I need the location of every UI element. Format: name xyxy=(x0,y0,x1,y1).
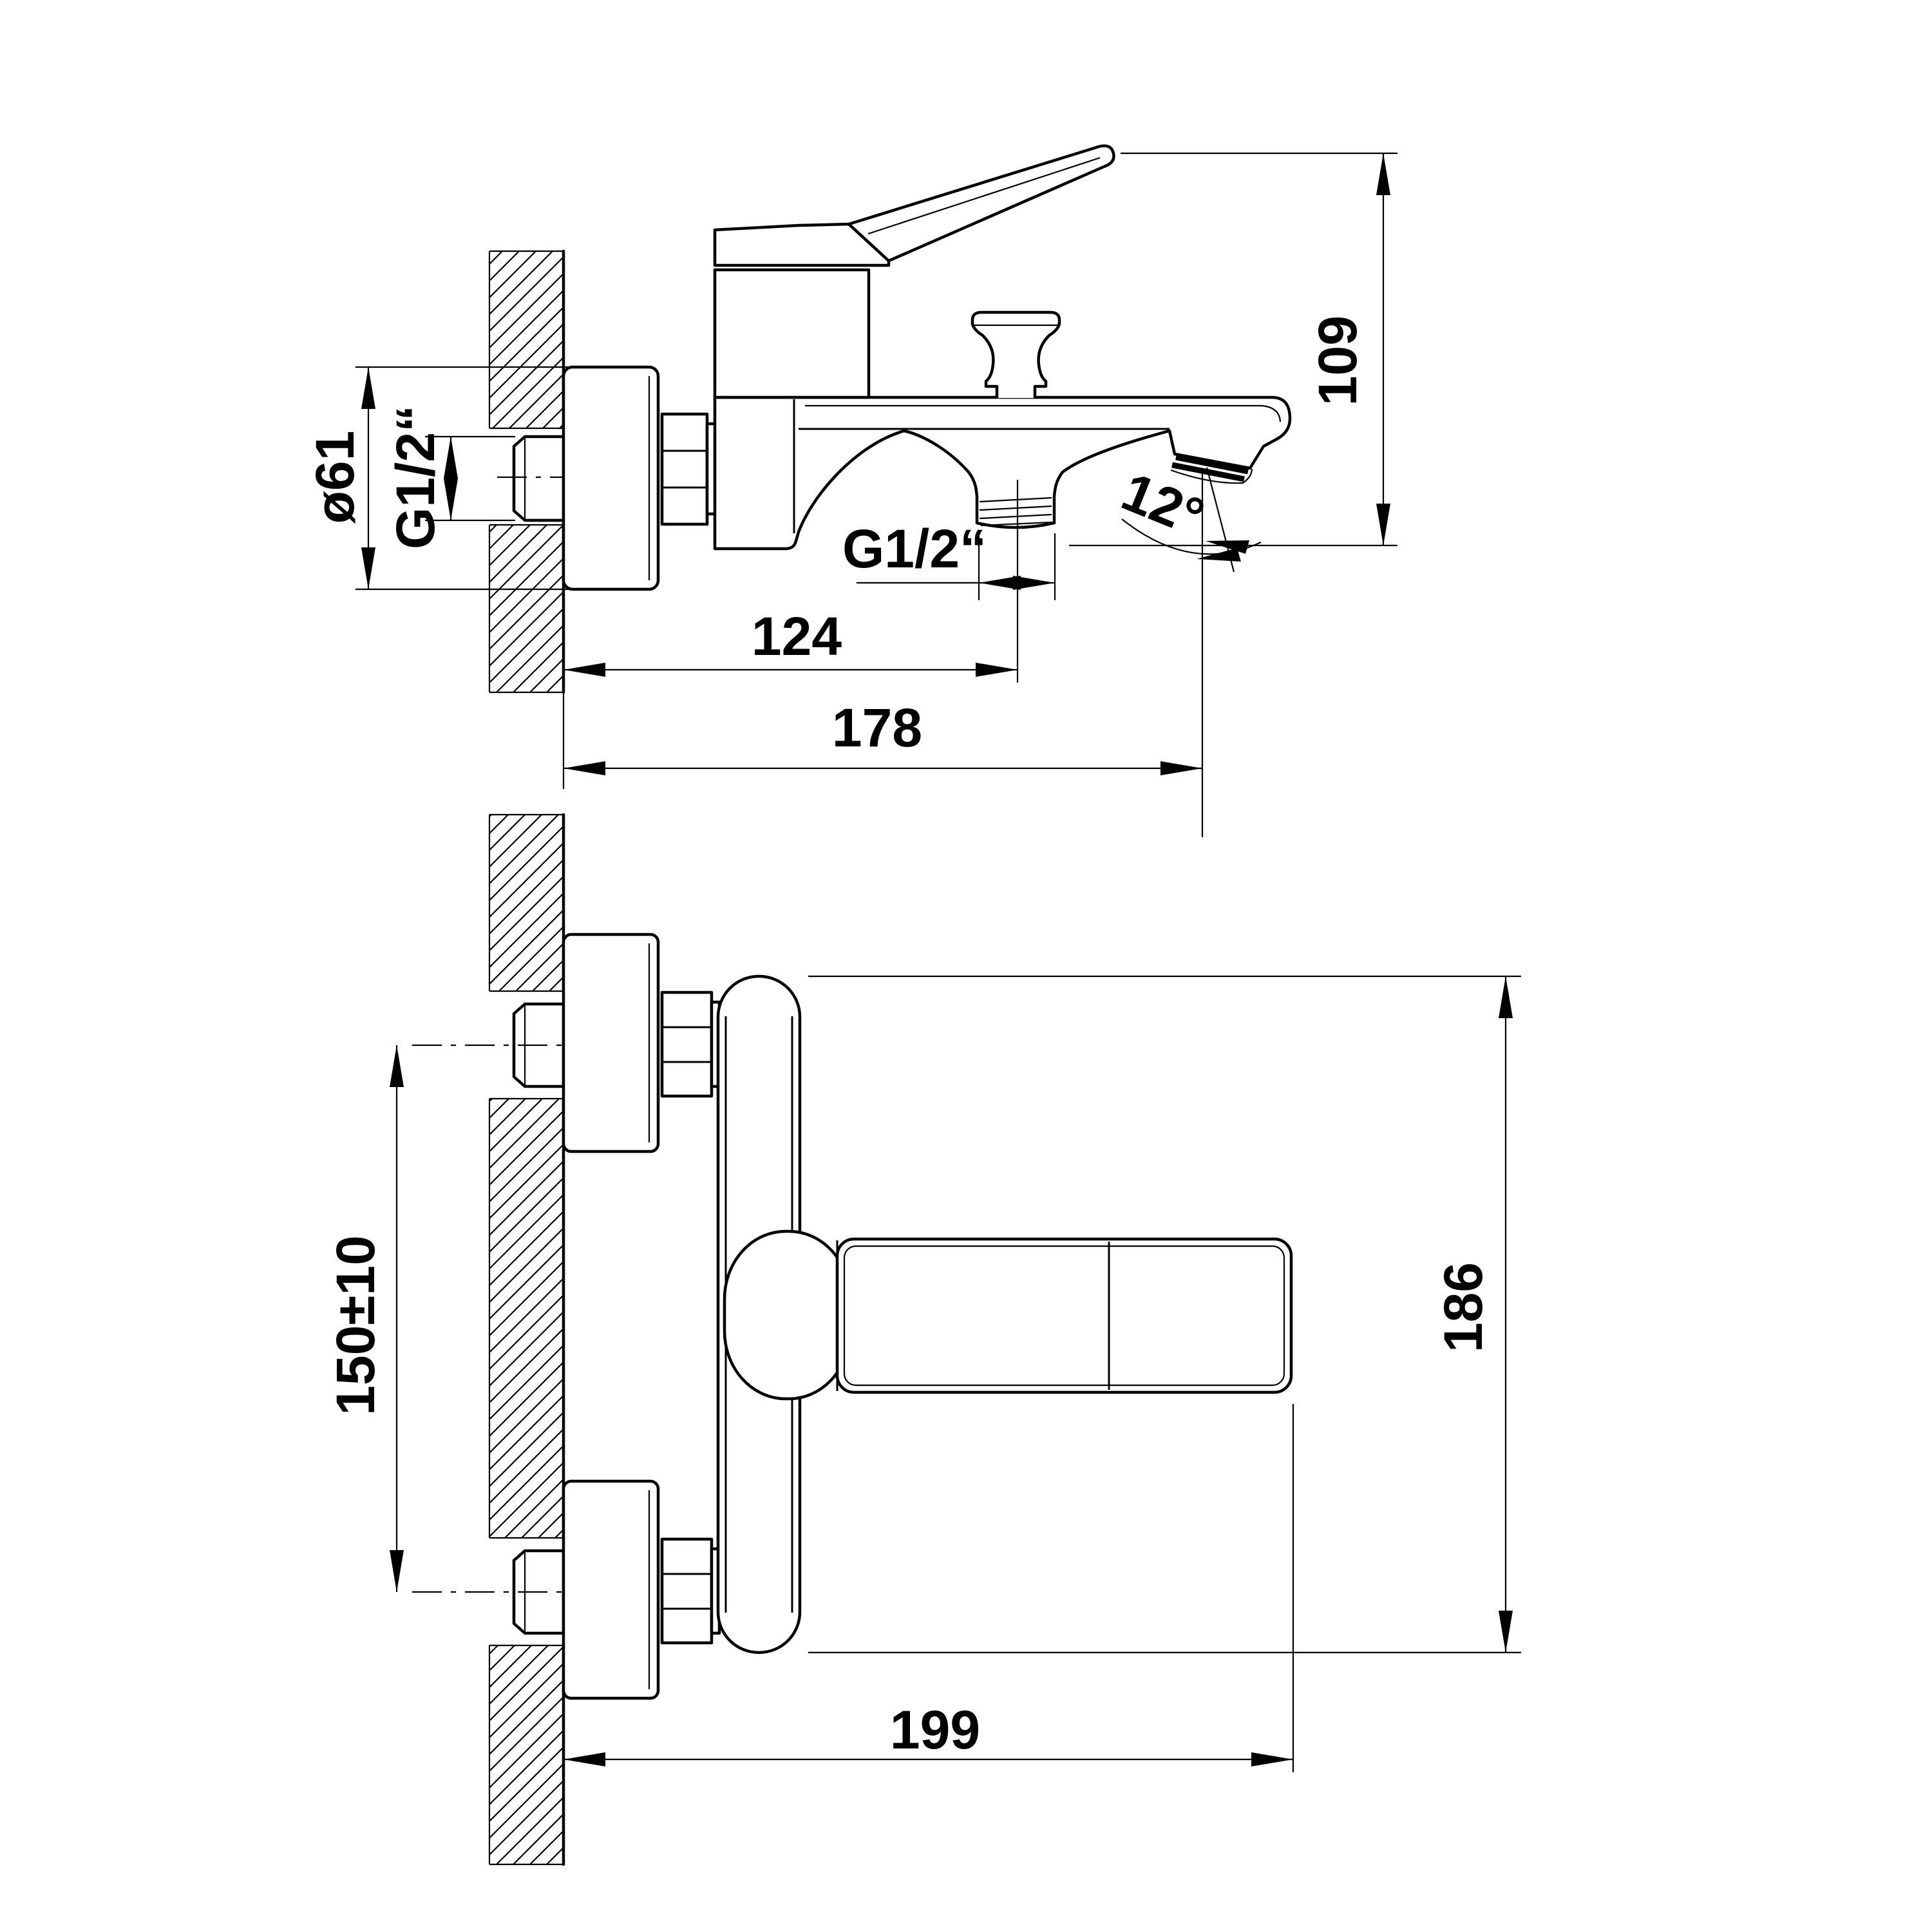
dimension-178: 178 xyxy=(563,697,1202,775)
cartridge-body-side-view xyxy=(715,270,869,397)
body-cap-plan-view xyxy=(724,1231,850,1399)
handle-spout-plan-view xyxy=(837,1239,1291,1392)
dimension-150: 150±10 xyxy=(325,1045,404,1592)
dimension-12-degrees: 12° xyxy=(1114,461,1261,837)
spout-body-side-view xyxy=(715,397,1290,549)
dim-label-178: 178 xyxy=(832,697,922,758)
lever-handle-side-view xyxy=(849,146,1113,261)
faucet-technical-drawing: 109 12° G1/2“ 124 178 ø61 xyxy=(0,0,1932,1932)
dim-label-12-degrees: 12° xyxy=(1114,461,1213,548)
escutcheon-plan-top xyxy=(563,934,658,1151)
escutcheon-plan-bottom xyxy=(563,1481,658,1698)
wall-section-plan-view xyxy=(489,815,563,1864)
technical-drawing-page: 109 12° G1/2“ 124 178 ø61 xyxy=(0,0,1932,1932)
dim-label-124: 124 xyxy=(752,606,842,667)
dim-label-109: 109 xyxy=(1307,316,1368,406)
dimension-109: 109 xyxy=(1069,153,1397,545)
dim-label-wall-thread: G1/2“ xyxy=(385,405,446,549)
diverter-knob-side-view xyxy=(972,312,1059,398)
dim-label-186: 186 xyxy=(1433,1262,1493,1352)
escutcheon-side-view xyxy=(563,367,658,589)
connector-nut-plan-top xyxy=(662,992,719,1096)
connector-nut-plan-bottom xyxy=(662,1539,719,1643)
dimension-shower-thread: G1/2“ xyxy=(842,518,1055,600)
connector-nut-side-view xyxy=(662,414,716,524)
dim-label-150: 150±10 xyxy=(325,1235,386,1416)
dim-label-shower-thread: G1/2“ xyxy=(842,518,987,579)
dim-label-199: 199 xyxy=(890,1700,980,1760)
dim-label-escutcheon-diameter: ø61 xyxy=(305,431,365,524)
